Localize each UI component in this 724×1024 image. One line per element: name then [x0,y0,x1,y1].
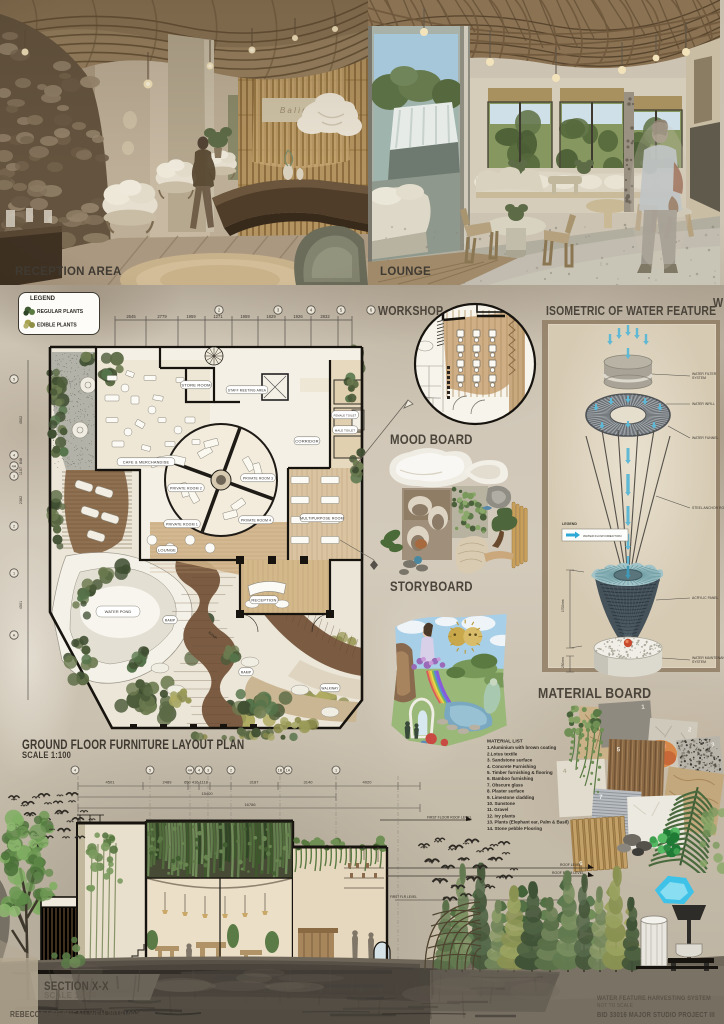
svg-text:3187: 3187 [250,780,260,785]
svg-text:848: 848 [19,458,23,464]
svg-text:3140: 3140 [304,780,314,785]
svg-text:WATER INFILL: WATER INFILL [692,402,715,406]
svg-text:1829: 1829 [266,314,276,319]
svg-text:A: A [13,633,16,637]
svg-text:PRIVATE ROOM 1: PRIVATE ROOM 1 [166,523,198,527]
svg-text:1700mm: 1700mm [561,599,565,612]
svg-text:FIRST FLOOR ROOF LEVEL: FIRST FLOOR ROOF LEVEL [427,816,472,820]
svg-text:1107: 1107 [19,467,23,475]
svg-text:ROOF LEVEL: ROOF LEVEL [560,863,581,867]
svg-text:2: 2 [13,524,15,528]
svg-text:4501: 4501 [106,780,116,785]
svg-text:250mm: 250mm [561,657,565,668]
svg-text:FEMALE TOILET: FEMALE TOILET [334,414,357,418]
svg-text:REGULAR PLANTS: REGULAR PLANTS [37,309,84,315]
svg-text:15400: 15400 [201,791,213,796]
svg-text:WATER POND: WATER POND [105,609,132,614]
svg-text:RAMP: RAMP [241,671,252,675]
svg-text:2362: 2362 [19,496,23,504]
svg-text:2489: 2489 [163,780,173,785]
svg-text:STEEL ANCHOR RODS: STEEL ANCHOR RODS [692,506,724,510]
svg-text:4: 4 [13,453,15,457]
svg-text:ACRYLIC PANEL: ACRYLIC PANEL [692,596,719,600]
svg-text:RAMP: RAMP [165,619,176,623]
svg-text:4501: 4501 [19,601,23,609]
svg-text:4020: 4020 [363,780,373,785]
svg-text:WATER FUNNEL: WATER FUNNEL [692,436,718,440]
svg-text:1: 1 [13,571,15,575]
svg-text:16786: 16786 [244,802,256,807]
svg-text:2832: 2832 [320,314,330,319]
svg-text:WALKWAY: WALKWAY [321,687,339,691]
svg-text:3: 3 [13,474,15,478]
svg-text:WATER FLOW DIRECTION: WATER FLOW DIRECTION [583,534,622,538]
svg-text:2645: 2645 [126,314,136,319]
svg-text:4502: 4502 [19,416,23,424]
svg-text:CAFE & MERCHANDISE: CAFE & MERCHANDISE [123,461,170,465]
svg-text:STAFF MEETING AREA: STAFF MEETING AREA [228,389,267,393]
svg-text:5: 5 [13,377,15,381]
svg-text:MALE TOILET: MALE TOILET [335,429,355,433]
svg-text:1959: 1959 [240,314,250,319]
svg-text:SYSTEM: SYSTEM [692,376,706,380]
svg-text:CORRIDOR: CORRIDOR [295,439,318,444]
svg-text:1959: 1959 [186,314,196,319]
svg-text:SYSTEM: SYSTEM [692,660,706,664]
svg-text:RECEPTION: RECEPTION [251,598,276,603]
svg-text:1926: 1926 [293,314,303,319]
svg-text:LOUNGE: LOUNGE [158,548,176,553]
svg-text:EDIBLE PLANTS: EDIBLE PLANTS [37,323,77,329]
svg-text:650 416 1118: 650 416 1118 [184,780,209,785]
svg-text:STORE ROOM: STORE ROOM [181,383,210,388]
svg-text:1271: 1271 [213,314,223,319]
svg-text:4A: 4A [12,464,17,468]
svg-text:2779: 2779 [157,314,167,319]
svg-text:PRIVATE ROOM 2: PRIVATE ROOM 2 [170,487,202,491]
svg-text:PRIVATE ROOM 3: PRIVATE ROOM 3 [243,477,273,481]
svg-text:LEGEND: LEGEND [562,522,577,526]
svg-text:FIRST FLR LEVEL: FIRST FLR LEVEL [390,895,417,899]
svg-text:PRIVATE ROOM 4: PRIVATE ROOM 4 [241,519,271,523]
svg-text:MULTIPURPOSE ROOM: MULTIPURPOSE ROOM [300,517,344,521]
